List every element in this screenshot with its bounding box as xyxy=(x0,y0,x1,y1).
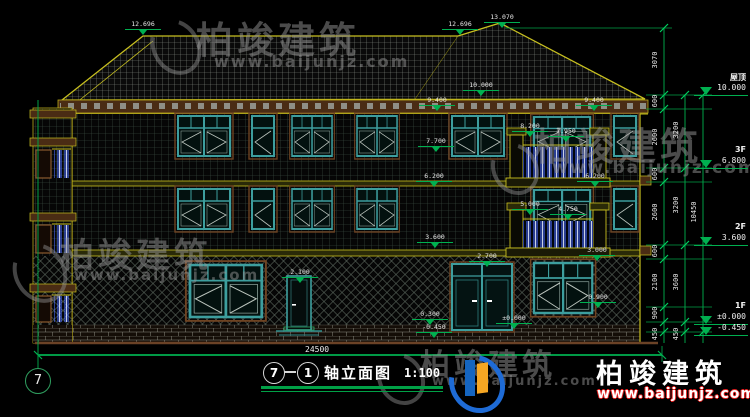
title-dash xyxy=(284,371,296,373)
kitchen-window xyxy=(531,259,596,317)
company-logo-building-icon xyxy=(465,360,475,396)
title-underline xyxy=(261,386,443,389)
dimension-ticks xyxy=(660,24,707,336)
main-entrance-double-door xyxy=(450,262,514,332)
left-side-bay xyxy=(30,108,76,343)
bay-balusters xyxy=(52,149,71,322)
total-width-dimension: 24500 xyxy=(305,345,329,354)
company-logo-building-icon xyxy=(477,362,488,394)
company-logo-url: www.baijunjz.com xyxy=(597,386,750,402)
drawing-title: 轴立面图 xyxy=(324,362,392,383)
axis-bubble-7: 7 xyxy=(25,368,51,394)
title-axis-from-circle: 7 xyxy=(263,362,285,384)
drawing-scale: 1:100 xyxy=(404,366,440,380)
living-room-window xyxy=(186,261,266,321)
hip-roof xyxy=(62,23,645,103)
cad-elevation-drawing: 柏竣建筑 www.baijunjz.com 柏竣建筑 www.baijunjz.… xyxy=(0,0,750,417)
eave-fascia xyxy=(58,100,648,114)
title-axis-to-circle: 1 xyxy=(297,362,319,384)
title-underline-thin xyxy=(261,391,443,392)
